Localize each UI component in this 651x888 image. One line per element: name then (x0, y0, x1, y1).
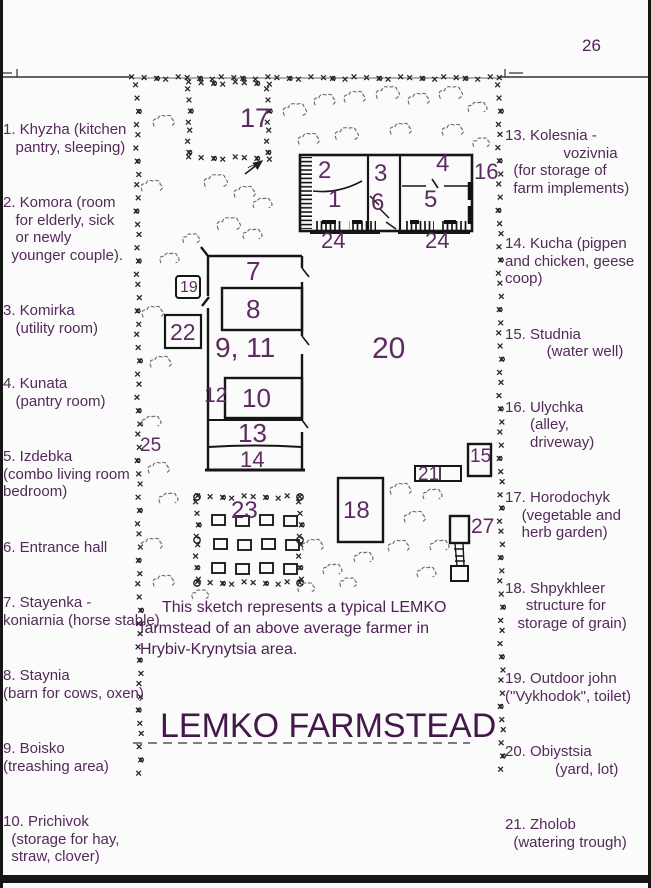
legend-left-column: 1. Khyzha (kitchen pantry, sleeping) 2. … (3, 86, 160, 888)
fence-ring (497, 209, 501, 213)
bush-scribble (183, 234, 200, 242)
map-label-21: 21 (418, 465, 439, 484)
fence-cross (498, 767, 503, 772)
fence-cross (499, 294, 504, 299)
map-label-12: 12 (204, 385, 227, 406)
fence-cross (187, 128, 192, 133)
fence-ring (222, 496, 226, 500)
fence-cross (499, 380, 504, 385)
fence-cross (499, 592, 504, 597)
fence-cross (499, 678, 504, 683)
fence-cross (496, 271, 501, 276)
fence-cross (498, 618, 503, 623)
legend-item-4: 4. Kunata (pantry room) (3, 375, 160, 410)
fence-cross (276, 496, 281, 501)
fence-ring (501, 357, 505, 361)
bush-scribble (234, 186, 255, 197)
legend-item-8: 8. Staynia (barn for cows, oxen) (3, 667, 160, 702)
fence-ring (301, 523, 305, 527)
garden-arrow (245, 161, 262, 174)
fence-cross (186, 79, 191, 84)
map-label-9-11: 9, 11 (215, 334, 275, 362)
fence-cross (298, 511, 303, 516)
fence-cross (500, 628, 505, 633)
bush-scribble (160, 253, 179, 263)
fence-cross (266, 98, 271, 103)
bush-scribble (430, 540, 449, 550)
fence-ring (213, 82, 217, 86)
fence-cross (296, 554, 301, 559)
legend-item-2: 2. Komora (room for elderly, sick or new… (3, 194, 160, 264)
fence-ring (213, 157, 217, 161)
fence-cross (499, 420, 504, 425)
fence-cross (187, 98, 192, 103)
fence-cross (499, 568, 504, 573)
fence-cross (498, 469, 503, 474)
fence-cross (297, 494, 302, 499)
legend-item-17: 17. Horodochyk (vegetable and herb garde… (505, 489, 634, 542)
fence-cross (210, 77, 215, 82)
map-label-2: 2 (318, 159, 331, 183)
legend-item-1: 1. Khyzha (kitchen pantry, sleeping) (3, 121, 160, 156)
fence-ring (500, 109, 504, 113)
map-label-16: 16 (474, 161, 498, 183)
beehive (212, 515, 225, 525)
fence-ring (500, 407, 504, 411)
bush-scribble (442, 124, 463, 135)
map-label-17: 17 (240, 105, 270, 132)
fence-cross (499, 740, 504, 745)
legend-item-7: 7. Stayenka - koniarnia (horse stable) (3, 594, 160, 629)
legend-item-16: 16. Ulychka (alley, driveway) (505, 399, 634, 452)
fence-cross (498, 320, 503, 325)
fence-cross (264, 139, 269, 144)
map-label-1: 1 (328, 188, 341, 212)
legend-item-21: 21. Zholob (watering trough) (505, 816, 634, 851)
fence-cross (498, 344, 503, 349)
fence-cross (220, 157, 225, 162)
map-label-4: 4 (436, 152, 449, 176)
beehive (260, 563, 273, 573)
bush-scribble (390, 123, 411, 134)
fence-cross (264, 86, 269, 91)
fence-cross (219, 74, 224, 79)
fence-cross (475, 77, 480, 82)
bush-scribble (388, 540, 409, 551)
fence-cross (195, 511, 200, 516)
fence-ring (256, 82, 260, 86)
map-label-3: 3 (374, 162, 387, 186)
fence-cross (208, 494, 213, 499)
fence-ring (299, 566, 303, 570)
fence-cross (242, 155, 247, 160)
fence-cross (497, 578, 502, 583)
fence-cross (163, 77, 168, 82)
fence-cross (253, 77, 258, 82)
fence-cross (497, 430, 502, 435)
fence-cross (498, 492, 503, 497)
map-label-8: 8 (246, 296, 260, 322)
fence-cross (267, 82, 272, 87)
bush-scribble (376, 87, 399, 99)
legend-item-15: 15. Studnia (water well) (505, 326, 634, 361)
legend-item-18: 18. Shpykhleer structure for storage of … (505, 580, 634, 633)
beehive (236, 564, 249, 574)
fence-cross (352, 74, 357, 79)
fence-cross (499, 231, 504, 236)
fence-ring (501, 506, 505, 510)
fence-cross (495, 82, 500, 87)
fence-ring (500, 556, 504, 560)
beehive (284, 564, 297, 574)
map-label-18: 18 (343, 499, 370, 523)
bush-scribble (417, 567, 436, 577)
bush-scribble (354, 552, 373, 562)
map-label-24-left: 24 (321, 230, 345, 252)
fence-cross (499, 529, 504, 534)
fence-ring (190, 109, 194, 113)
bush-scribble (204, 175, 227, 187)
fence-cross (242, 80, 247, 85)
fence-ring (265, 496, 269, 500)
fence-cross (233, 79, 238, 84)
fence-ring (499, 159, 503, 163)
fence-cross (309, 74, 314, 79)
fence-ring (500, 258, 504, 262)
bush-scribble (314, 94, 335, 105)
fence-cross (176, 74, 181, 79)
fence-cross (398, 74, 403, 79)
map-label-23: 23 (231, 499, 258, 523)
fence-ring (267, 151, 271, 155)
fence-ring (198, 523, 202, 527)
fence-cross (251, 580, 256, 585)
fence-ring (256, 157, 260, 161)
fence-ring (188, 151, 192, 155)
fence-cross (498, 172, 503, 177)
fence-cross (199, 155, 204, 160)
fence-cross (242, 579, 247, 584)
fence-cross (229, 582, 234, 587)
bush-scribble (439, 87, 462, 99)
fence-cross (193, 554, 198, 559)
bush-scribble (283, 104, 306, 116)
beehive (214, 539, 227, 549)
map-label-27: 27 (471, 516, 494, 537)
map-label-5: 5 (424, 188, 437, 212)
fence-ring (265, 582, 269, 586)
page-number: 26 (582, 36, 601, 56)
fence-cross (488, 74, 493, 79)
legend-item-20: 20. Obiystsia (yard, lot) (505, 743, 634, 778)
fence-cross (185, 139, 190, 144)
map-label-24-right: 24 (425, 230, 449, 252)
top-boundary (0, 69, 651, 78)
bush-scribble (335, 128, 358, 140)
fence-cross (285, 579, 290, 584)
bush-scribble (473, 138, 490, 146)
bush-scribble (344, 91, 365, 102)
bush-scribble (298, 133, 319, 144)
fence-cross (386, 77, 391, 82)
fence-cross (498, 132, 503, 137)
bush-scribble (323, 564, 342, 574)
beehive (284, 516, 297, 526)
fence-cross (498, 195, 503, 200)
fence-cross (497, 370, 502, 375)
page-title: LEMKO FARMSTEAD (160, 707, 496, 746)
fence-cross (233, 154, 238, 159)
map-label-6: 6 (371, 191, 384, 215)
fence-cross (199, 80, 204, 85)
legend-item-10: 10. Prichivok (storage for hay, straw, c… (3, 813, 160, 866)
fence-cross (500, 479, 505, 484)
fence-cross (276, 582, 281, 587)
bush-scribble (217, 218, 240, 230)
fence-cross (208, 580, 213, 585)
fence-cross (343, 77, 348, 82)
map-label-13: 13 (238, 420, 267, 446)
bush-scribble (404, 511, 425, 522)
fence-cross (296, 77, 301, 82)
fence-cross (497, 244, 502, 249)
fence-cross (267, 157, 272, 162)
bush-scribble (423, 489, 442, 499)
fence-cross (497, 96, 502, 101)
fruit-drier-box (450, 516, 469, 581)
legend-item-6: 6. Entrance hall (3, 539, 160, 557)
bush-scribble (408, 93, 429, 104)
beehive (238, 540, 251, 550)
map-label-10: 10 (242, 385, 271, 411)
map-label-14: 14 (240, 449, 264, 471)
beehive (212, 563, 225, 573)
legend-item-13: 13. Kolesnia - vozivnia (for storage of … (505, 127, 634, 197)
fence-cross (285, 493, 290, 498)
beehive (260, 515, 273, 525)
fence-cross (499, 717, 504, 722)
bush-scribble (468, 102, 487, 112)
bush-scribble (390, 483, 411, 494)
fence-cross (497, 281, 502, 286)
fence-cross (495, 145, 500, 150)
legend-item-19: 19. Outdoor john ("Vykhodok", toilet) (505, 670, 634, 705)
fence-cross (497, 221, 502, 226)
fence-cross (498, 641, 503, 646)
fence-cross (441, 74, 446, 79)
fence-cross (496, 122, 501, 127)
fence-cross (186, 120, 191, 125)
legend-item-9: 9. Boisko (treashing area) (3, 740, 160, 775)
fence-cross (496, 330, 501, 335)
fence-cross (265, 74, 270, 79)
beehive (262, 539, 275, 549)
map-label-19: 19 (180, 280, 198, 296)
bush-scribble (243, 229, 262, 239)
bush-scribble (302, 539, 323, 550)
fence-ring (498, 457, 502, 461)
fence-ring (498, 308, 502, 312)
fence-cross (497, 393, 502, 398)
map-label-15: 15 (470, 447, 491, 466)
legend-right-column: 13. Kolesnia - vozivnia (for storage of … (505, 92, 634, 888)
map-label-25: 25 (140, 436, 161, 455)
fence-cross (499, 443, 504, 448)
map-label-20: 20 (372, 334, 405, 364)
bush-scribble (253, 198, 272, 208)
scanned-page: 26 1. Khyzha (kitchen pantry, sleeping) … (0, 0, 651, 888)
fence-cross (185, 86, 190, 91)
fence-cross (220, 82, 225, 87)
legend-item-3: 3. Komirka (utility room) (3, 302, 160, 337)
fence-cross (432, 77, 437, 82)
bush-scribble (340, 578, 357, 586)
fence-cross (497, 519, 502, 524)
fence-ring (500, 705, 504, 709)
bush-scribble (159, 493, 178, 503)
fence-ring (196, 566, 200, 570)
legend-item-14: 14. Kucha (pigpen and chicken, geese coo… (505, 235, 634, 288)
sketch-caption: This sketch represents a typical LEMKO f… (140, 597, 447, 660)
map-label-7: 7 (246, 258, 260, 284)
fence-ring (501, 655, 505, 659)
fence-ring (222, 582, 226, 586)
legend-item-5: 5. Izdebka (combo living room bedroom) (3, 448, 160, 501)
map-label-22: 22 (170, 321, 196, 344)
